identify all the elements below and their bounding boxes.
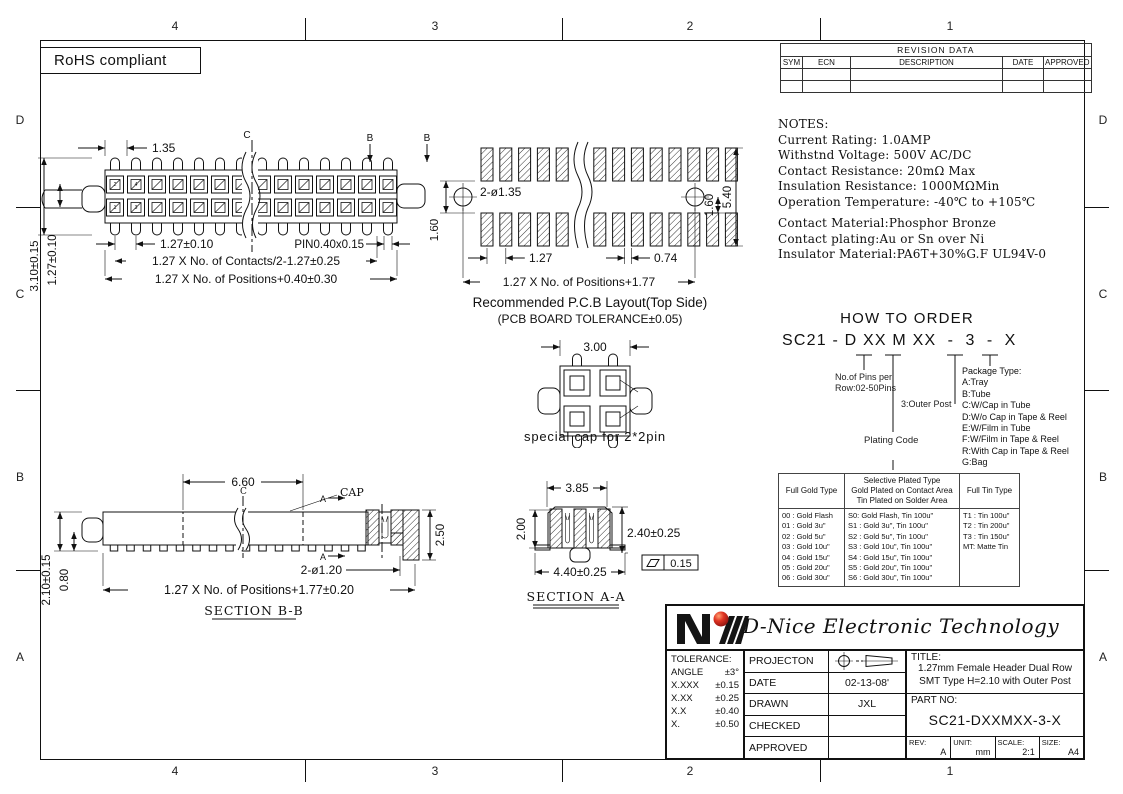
dim-label: 1.60 bbox=[430, 219, 441, 241]
centerline-label: C bbox=[240, 487, 247, 497]
part-number-value: SC21-DXXMXX-3-X bbox=[911, 712, 1079, 728]
package-option: D:W/o Cap in Tape & Reel bbox=[962, 412, 1084, 423]
package-option: B:Tube bbox=[962, 389, 1084, 400]
dim-label: 1.27±0.10 bbox=[47, 234, 59, 285]
tolerance-row: X.XX±0.25 bbox=[671, 692, 739, 705]
drawn-value: JXL bbox=[829, 694, 905, 715]
revision-empty-row bbox=[781, 69, 1092, 81]
zone-col-bot-1: 1 bbox=[940, 764, 960, 778]
package-option: G:Bag bbox=[962, 457, 1084, 468]
section-a-label: A bbox=[320, 494, 326, 504]
connector-body-side bbox=[103, 512, 368, 545]
outer-post-section bbox=[366, 510, 419, 560]
unit-cell: UNIT: mm bbox=[951, 737, 995, 758]
tolerance-label: TOLERANCE: bbox=[671, 653, 739, 666]
left-polarity-tab bbox=[82, 186, 105, 212]
flatness-symbol-icon bbox=[647, 560, 659, 567]
top-pad-row bbox=[481, 148, 737, 181]
flatness-value: 0.15 bbox=[670, 558, 691, 570]
zone-row-right-c: C bbox=[1093, 287, 1113, 301]
unit-label: UNIT: bbox=[953, 738, 972, 747]
mounting-hole-left bbox=[449, 183, 477, 211]
approved-value bbox=[829, 737, 905, 758]
section-bb-drawing: 6.60 CAP C A A 2.50 2-ø1.20 bbox=[40, 468, 470, 623]
company-name: D-Nice Electronic Technology bbox=[743, 614, 1059, 638]
dim-label: 3.00 bbox=[583, 340, 607, 354]
dim-label: PIN0.40x0.15 bbox=[294, 239, 364, 251]
size-label: SIZE: bbox=[1042, 738, 1061, 747]
zone-col-top-1: 1 bbox=[940, 19, 960, 33]
plating-header-line: Tin Plated on Solder Area bbox=[848, 496, 956, 506]
drawing-title-cell: TITLE: 1.27mm Female Header Dual Row SMT… bbox=[907, 651, 1083, 694]
cap-side-tab bbox=[538, 388, 560, 414]
order-code: SC21 - D XX M XX - 3 - X bbox=[782, 332, 1017, 350]
zone-row-left-c: C bbox=[10, 287, 30, 301]
plating-header-tin: Full Tin Type bbox=[960, 474, 1020, 509]
plating-header-line: Gold Plated on Contact Area bbox=[848, 486, 956, 496]
zone-tick bbox=[16, 390, 40, 391]
centerline-label: C bbox=[243, 130, 250, 141]
how-to-order-heading: HOW TO ORDER bbox=[812, 310, 1002, 327]
drawn-row: DRAWN JXL bbox=[745, 694, 905, 716]
part-number-label: PART NO: bbox=[911, 695, 1079, 706]
zone-col-top-4: 4 bbox=[165, 19, 185, 33]
plating-tin-list: T1 : Tin 100u"T2 : Tin 200u" T3 : Tin 15… bbox=[960, 509, 1020, 587]
body-left-tab bbox=[82, 518, 103, 542]
part-number-cell: PART NO: SC21-DXXMXX-3-X bbox=[907, 694, 1083, 737]
cap-side-tab bbox=[630, 388, 652, 414]
pcb-caption: Recommended P.C.B Layout(Top Side) bbox=[473, 295, 708, 310]
dim-label: 3.85 bbox=[565, 481, 589, 495]
projection-row: PROJECTON bbox=[745, 651, 905, 673]
dim-label: 5.40 bbox=[722, 186, 734, 208]
section-bb-caption: SECTION B-B bbox=[204, 603, 304, 618]
dim-label: 1.27 X No. of Positions+0.40±0.30 bbox=[155, 272, 338, 286]
revision-col-date: DATE bbox=[1003, 57, 1044, 69]
zone-col-bot-4: 4 bbox=[165, 764, 185, 778]
pins-note-line1: No.of Pins per bbox=[835, 372, 896, 383]
drawn-label: DRAWN bbox=[745, 694, 829, 715]
dim-label: 2-ø1.35 bbox=[480, 185, 522, 199]
dim-label: 1.35 bbox=[152, 141, 176, 155]
pcb-subcaption: (PCB BOARD TOLERANCE±0.05) bbox=[498, 312, 683, 326]
zone-col-bot-3: 3 bbox=[425, 764, 445, 778]
pin-number: 3 bbox=[135, 205, 138, 211]
date-value: 02-13-08' bbox=[829, 673, 905, 694]
dim-label: 1.60 bbox=[704, 194, 716, 216]
rev-value: A bbox=[940, 747, 946, 757]
zone-tick bbox=[1085, 390, 1109, 391]
plating-header-selective: Selective Plated Type Gold Plated on Con… bbox=[845, 474, 960, 509]
note-line: Contact plating:Au or Sn over Ni bbox=[778, 232, 1080, 248]
tolerance-row: X.X±0.40 bbox=[671, 705, 739, 718]
zone-tick bbox=[562, 18, 563, 40]
revision-col-approved: APPROVED bbox=[1044, 57, 1092, 69]
section-a-label: A bbox=[320, 552, 326, 562]
rev-cell: REV: A bbox=[907, 737, 951, 758]
package-type-list: Package Type: A:Tray B:Tube C:W/Cap in T… bbox=[962, 366, 1084, 469]
cap-contact-grid bbox=[564, 370, 638, 432]
title-block: D-Nice Electronic Technology TOLERANCE: … bbox=[665, 604, 1085, 760]
dim-label: 2.00 bbox=[516, 518, 528, 540]
notes-block: NOTES: Current Rating: 1.0AMP Withstnd V… bbox=[778, 117, 1080, 263]
plating-code-note: Plating Code bbox=[864, 436, 918, 447]
note-line: Withstnd Voltage: 500V AC/DC bbox=[778, 148, 1080, 164]
zone-col-top-3: 3 bbox=[425, 19, 445, 33]
size-cell: SIZE: A4 bbox=[1040, 737, 1083, 758]
approval-column: PROJECTON DATE 02-13-08' bbox=[745, 651, 907, 758]
revision-table: REVISION DATA SYM ECN DESCRIPTION DATE A… bbox=[780, 43, 1092, 93]
package-option: F:W/Film in Tape & Reel bbox=[962, 434, 1084, 445]
zone-row-left-a: A bbox=[10, 650, 30, 664]
dim-label: 0.80 bbox=[59, 569, 71, 591]
cap-callout-label: CAP bbox=[340, 486, 364, 499]
note-line: Contact Material:Phosphor Bronze bbox=[778, 216, 1080, 232]
outer-post-note: 3:Outer Post bbox=[901, 399, 952, 410]
tolerance-column: TOLERANCE: ANGLE±3° X.XXX±0.15 X.XX±0.25… bbox=[667, 651, 745, 758]
title-column: TITLE: 1.27mm Female Header Dual Row SMT… bbox=[907, 651, 1083, 758]
note-line: Operation Temperature: -40℃ to +105℃ bbox=[778, 195, 1080, 211]
dim-label: 1.27 X No. of Contacts/2-1.27±0.25 bbox=[152, 254, 340, 268]
dim-label: 4.40±0.25 bbox=[553, 565, 607, 579]
checked-label: CHECKED bbox=[745, 716, 829, 737]
date-row: DATE 02-13-08' bbox=[745, 673, 905, 695]
drawing-title-line2: SMT Type H=2.10 with Outer Post bbox=[911, 676, 1079, 689]
projection-label: PROJECTON bbox=[745, 651, 829, 672]
note-line: Contact Resistance: 20mΩ Max bbox=[778, 164, 1080, 180]
date-label: DATE bbox=[745, 673, 829, 694]
pin-number: 4 bbox=[135, 182, 138, 188]
dim-label: 2-ø1.20 bbox=[301, 563, 343, 577]
plating-header-gold: Full Gold Type bbox=[779, 474, 845, 509]
scale-label: SCALE: bbox=[998, 738, 1025, 747]
checked-value bbox=[829, 716, 905, 737]
checked-row: CHECKED bbox=[745, 716, 905, 738]
title-label: TITLE: bbox=[911, 652, 1079, 663]
revision-empty-row bbox=[781, 81, 1092, 93]
pin-number: 2 bbox=[114, 182, 117, 188]
pin-number: 1 bbox=[114, 205, 117, 211]
note-line: Insulator Material:PA6T+30%G.F UL94V-0 bbox=[778, 247, 1080, 263]
plating-header-line: Selective Plated Type bbox=[848, 476, 956, 486]
pins-note-line2: Row:02-50Pins bbox=[835, 383, 896, 394]
section-aa-caption: SECTION A-A bbox=[527, 589, 626, 604]
dim-label: 1.27 X No. of Positions+1.77±0.20 bbox=[164, 583, 354, 597]
special-cap-caption: special cap for 2*2pin bbox=[505, 429, 685, 444]
right-polarity-tab bbox=[397, 184, 425, 208]
zone-tick bbox=[305, 760, 306, 782]
bottom-pad-row bbox=[481, 213, 737, 246]
zone-row-right-d: D bbox=[1093, 113, 1113, 127]
third-angle-projection-icon bbox=[832, 652, 902, 670]
section-b-label: B bbox=[367, 133, 374, 144]
package-option: E:W/Film in Tube bbox=[962, 423, 1084, 434]
dim-label: 1.27 bbox=[529, 251, 553, 265]
dim-label: 0.74 bbox=[654, 251, 678, 265]
tolerance-row: ANGLE±3° bbox=[671, 666, 739, 679]
revision-col-sym: SYM bbox=[781, 57, 803, 69]
scale-value: 2:1 bbox=[1022, 747, 1035, 757]
rev-label: REV: bbox=[909, 738, 926, 747]
dim-label: 3.10±0.15 bbox=[30, 240, 41, 291]
plating-code-table: Full Gold Type Selective Plated Type Gol… bbox=[778, 473, 1020, 587]
unit-value: mm bbox=[976, 747, 991, 757]
revision-title: REVISION DATA bbox=[781, 44, 1092, 57]
dim-label: 2.10±0.15 bbox=[41, 554, 53, 605]
tolerance-row: X.XXX±0.15 bbox=[671, 679, 739, 692]
drawing-sheet: 4 3 2 1 4 3 2 1 D C B A D C B A RoHS com… bbox=[0, 0, 1123, 794]
dim-label: 2.40±0.25 bbox=[627, 526, 681, 540]
drawing-title-line1: 1.27mm Female Header Dual Row bbox=[911, 663, 1079, 676]
housing-cross-section bbox=[535, 507, 625, 562]
zone-row-left-d: D bbox=[10, 113, 30, 127]
zone-col-bot-2: 2 bbox=[680, 764, 700, 778]
dim-label: 2.50 bbox=[435, 524, 447, 546]
section-aa-drawing: 3.85 2.00 2.40±0.25 0.15 4.40±0.25 bbox=[495, 475, 710, 615]
zone-tick bbox=[820, 760, 821, 782]
revision-col-ecn: ECN bbox=[803, 57, 851, 69]
logo-row: D-Nice Electronic Technology bbox=[667, 606, 1083, 651]
dim-label: 1.27±0.10 bbox=[160, 237, 214, 251]
approved-row: APPROVED bbox=[745, 737, 905, 758]
package-type-heading: Package Type: bbox=[962, 366, 1084, 377]
pins-per-row-note: No.of Pins per Row:02-50Pins bbox=[835, 372, 896, 393]
zone-col-top-2: 2 bbox=[680, 19, 700, 33]
flatness-tolerance-frame: 0.15 bbox=[642, 555, 698, 570]
zone-row-right-a: A bbox=[1093, 650, 1113, 664]
package-option: C:W/Cap in Tube bbox=[962, 400, 1084, 411]
note-line: Current Rating: 1.0AMP bbox=[778, 133, 1080, 149]
approved-label: APPROVED bbox=[745, 737, 829, 758]
plating-selective-list: S0: Gold Flash, Tin 100u"S1 : Gold 3u", … bbox=[845, 509, 960, 587]
notes-heading: NOTES: bbox=[778, 117, 1080, 133]
zone-tick bbox=[16, 570, 40, 571]
tolerance-row: X.±0.50 bbox=[671, 718, 739, 731]
zone-row-left-b: B bbox=[10, 470, 30, 484]
package-option: R:With Cap in Tape & Reel bbox=[962, 446, 1084, 457]
rev-unit-scale-size-row: REV: A UNIT: mm SCALE: 2:1 SIZE: A4 bbox=[907, 737, 1083, 758]
rohs-compliant-badge: RoHS compliant bbox=[40, 47, 201, 74]
zone-tick bbox=[305, 18, 306, 40]
scale-cell: SCALE: 2:1 bbox=[996, 737, 1040, 758]
zone-row-right-b: B bbox=[1093, 470, 1113, 484]
revision-col-description: DESCRIPTION bbox=[851, 57, 1003, 69]
zone-tick bbox=[1085, 570, 1109, 571]
pcb-layout-drawing: 2-ø1.35 1.60 1.60 5.40 1.27 0.74 1.27 X … bbox=[430, 140, 750, 335]
zone-tick bbox=[1085, 207, 1109, 208]
plating-gold-list: 00 : Gold Flash01 : Gold 3u" 02 : Gold 5… bbox=[779, 509, 845, 587]
dim-label: 1.27 X No. of Positions+1.77 bbox=[503, 275, 656, 289]
top-view-drawing: 2 4 1 3 C B B 1.35 3.10±0.15 1.27±0.10 1… bbox=[30, 128, 450, 298]
zone-tick bbox=[820, 18, 821, 40]
zone-tick bbox=[562, 760, 563, 782]
size-value: A4 bbox=[1068, 747, 1079, 757]
package-option: A:Tray bbox=[962, 377, 1084, 388]
note-line: Insulation Resistance: 1000MΩMin bbox=[778, 179, 1080, 195]
title-block-grid: TOLERANCE: ANGLE±3° X.XXX±0.15 X.XX±0.25… bbox=[667, 651, 1083, 758]
